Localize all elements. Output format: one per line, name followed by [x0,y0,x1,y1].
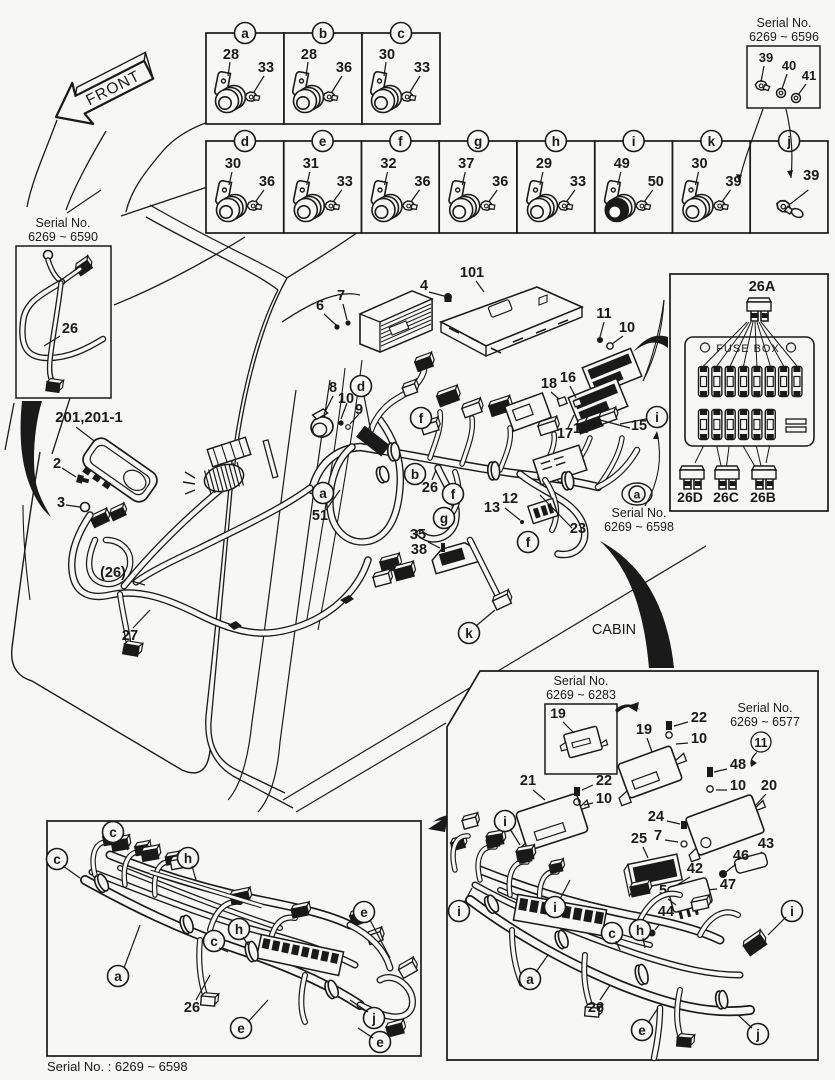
svg-text:i: i [790,904,794,919]
svg-text:40: 40 [782,58,796,73]
svg-text:36: 36 [492,174,508,190]
svg-text:4: 4 [420,278,428,294]
svg-text:26D: 26D [677,489,703,505]
svg-text:30: 30 [691,156,707,172]
svg-text:f: f [526,535,531,550]
svg-text:20: 20 [761,778,777,794]
svg-text:48: 48 [730,757,746,773]
svg-text:g: g [440,511,448,526]
svg-text:d: d [357,379,365,394]
svg-text:h: h [552,134,560,149]
svg-text:39: 39 [759,50,773,65]
svg-text:c: c [397,26,405,41]
svg-text:c: c [53,852,61,867]
svg-text:39: 39 [803,168,819,184]
svg-text:14: 14 [573,421,589,437]
svg-text:10: 10 [619,320,635,336]
svg-text:i: i [503,814,507,829]
svg-text:21: 21 [520,773,536,789]
svg-text:38: 38 [411,542,427,558]
svg-text:33: 33 [570,174,586,190]
svg-text:29: 29 [536,156,552,172]
svg-text:18: 18 [541,376,557,392]
svg-text:26C: 26C [713,489,739,505]
svg-text:h: h [184,851,192,866]
svg-text:i: i [553,900,557,915]
svg-text:e: e [376,1035,384,1050]
svg-text:28: 28 [223,47,239,63]
svg-text:17: 17 [557,426,573,442]
svg-text:j: j [755,1027,760,1042]
svg-text:a: a [526,972,534,987]
svg-text:f: f [419,411,424,426]
svg-text:6269 ~ 6598: 6269 ~ 6598 [604,520,674,534]
svg-text:10: 10 [730,778,746,794]
svg-text:6269 ~ 6596: 6269 ~ 6596 [749,30,819,44]
svg-text:33: 33 [337,174,353,190]
svg-text:d: d [241,134,249,149]
svg-text:12: 12 [502,491,518,507]
svg-text:36: 36 [336,60,352,76]
svg-text:8: 8 [329,380,337,396]
svg-text:6269 ~ 6283: 6269 ~ 6283 [546,688,616,702]
svg-text:23: 23 [570,521,586,537]
svg-text:43: 43 [758,836,774,852]
svg-text:a: a [319,486,327,501]
svg-text:201,201-1: 201,201-1 [55,409,123,426]
svg-text:9: 9 [355,402,363,418]
svg-text:16: 16 [560,370,576,386]
svg-text:25: 25 [631,831,647,847]
svg-text:a: a [114,969,122,984]
svg-text:g: g [474,134,482,149]
svg-text:f: f [398,134,403,149]
svg-text:f: f [451,487,456,502]
svg-text:Serial No. : 6269 ~ 6598: Serial No. : 6269 ~ 6598 [47,1059,188,1074]
svg-text:46: 46 [733,848,749,864]
svg-text:c: c [109,825,117,840]
svg-text:47: 47 [720,877,736,893]
svg-text:49: 49 [614,156,630,172]
svg-text:51: 51 [312,508,328,524]
svg-text:e: e [638,1023,646,1038]
svg-text:(26): (26) [100,565,126,581]
svg-text:k: k [708,134,716,149]
svg-text:3: 3 [57,495,65,511]
svg-text:11: 11 [754,736,767,750]
svg-text:k: k [465,626,473,641]
svg-text:24: 24 [648,809,664,825]
svg-text:28: 28 [301,47,317,63]
svg-text:26: 26 [62,321,78,337]
svg-text:35: 35 [410,527,426,543]
svg-text:Serial No.: Serial No. [554,674,609,688]
svg-text:37: 37 [458,156,474,172]
svg-text:42: 42 [687,861,703,877]
svg-text:30: 30 [379,47,395,63]
svg-text:30: 30 [225,156,241,172]
svg-text:h: h [235,922,243,937]
svg-text:a: a [241,26,249,41]
svg-text:32: 32 [380,156,396,172]
svg-text:19: 19 [636,722,652,738]
svg-text:11: 11 [596,306,611,322]
svg-text:Serial No.: Serial No. [757,16,812,30]
svg-text:i: i [632,134,636,149]
svg-text:26: 26 [422,480,438,496]
svg-text:31: 31 [303,156,319,172]
svg-text:Serial No.: Serial No. [612,506,667,520]
svg-text:h: h [636,923,644,938]
svg-text:Serial No.: Serial No. [36,216,91,230]
svg-text:2: 2 [53,456,61,472]
svg-text:27: 27 [122,628,138,644]
svg-text:19: 19 [550,705,566,721]
svg-text:6269 ~ 6577: 6269 ~ 6577 [730,715,800,729]
svg-text:7: 7 [654,828,662,844]
svg-text:7: 7 [337,288,345,304]
svg-text:CABIN: CABIN [592,622,636,638]
svg-text:101: 101 [460,265,484,281]
svg-text:41: 41 [802,68,816,83]
svg-text:10: 10 [596,791,612,807]
svg-text:13: 13 [484,500,500,516]
svg-text:c: c [608,926,616,941]
svg-text:Serial No.: Serial No. [738,701,793,715]
svg-text:50: 50 [648,174,664,190]
svg-text:b: b [411,467,419,482]
svg-text:c: c [210,934,218,949]
svg-text:e: e [360,905,368,920]
svg-text:6: 6 [316,298,324,314]
svg-text:36: 36 [259,174,275,190]
svg-text:i: i [655,410,659,425]
svg-text:e: e [319,134,327,149]
svg-text:26B: 26B [750,489,776,505]
svg-text:33: 33 [414,60,430,76]
svg-text:26: 26 [588,1000,604,1016]
svg-text:26A: 26A [749,279,776,295]
svg-text:6269 ~ 6590: 6269 ~ 6590 [28,230,98,244]
svg-text:22: 22 [596,773,612,789]
svg-text:10: 10 [691,731,707,747]
svg-text:36: 36 [414,174,430,190]
svg-text:b: b [319,26,327,41]
svg-text:j: j [371,1011,376,1026]
svg-text:a: a [634,487,641,501]
svg-text:i: i [457,904,461,919]
svg-text:26: 26 [184,1000,200,1016]
svg-text:33: 33 [258,60,274,76]
svg-text:22: 22 [691,710,707,726]
svg-text:e: e [237,1021,245,1036]
